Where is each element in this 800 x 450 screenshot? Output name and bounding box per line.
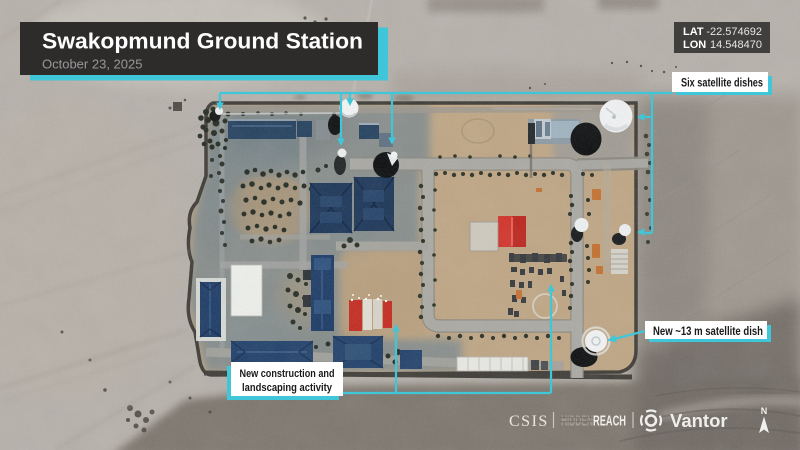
svg-text:REACH: REACH (593, 414, 626, 430)
svg-text:LAT: LAT (683, 26, 704, 38)
svg-text:Swakopmund Ground Station: Swakopmund Ground Station (42, 29, 363, 54)
svg-text:-22.574692: -22.574692 (706, 26, 762, 38)
svg-text:Six satellite dishes: Six satellite dishes (681, 76, 763, 90)
svg-text:New ~13 m satellite dish: New ~13 m satellite dish (653, 326, 763, 338)
svg-text:landscaping activity: landscaping activity (242, 382, 333, 394)
svg-text:New construction and: New construction and (240, 368, 335, 380)
svg-text:N: N (761, 406, 768, 416)
svg-text:CSIS: CSIS (509, 413, 549, 430)
svg-text:14.548470: 14.548470 (710, 39, 762, 51)
svg-text:Vantor: Vantor (670, 410, 728, 431)
svg-text:October 23, 2025: October 23, 2025 (42, 57, 142, 72)
svg-text:LON: LON (683, 39, 706, 51)
